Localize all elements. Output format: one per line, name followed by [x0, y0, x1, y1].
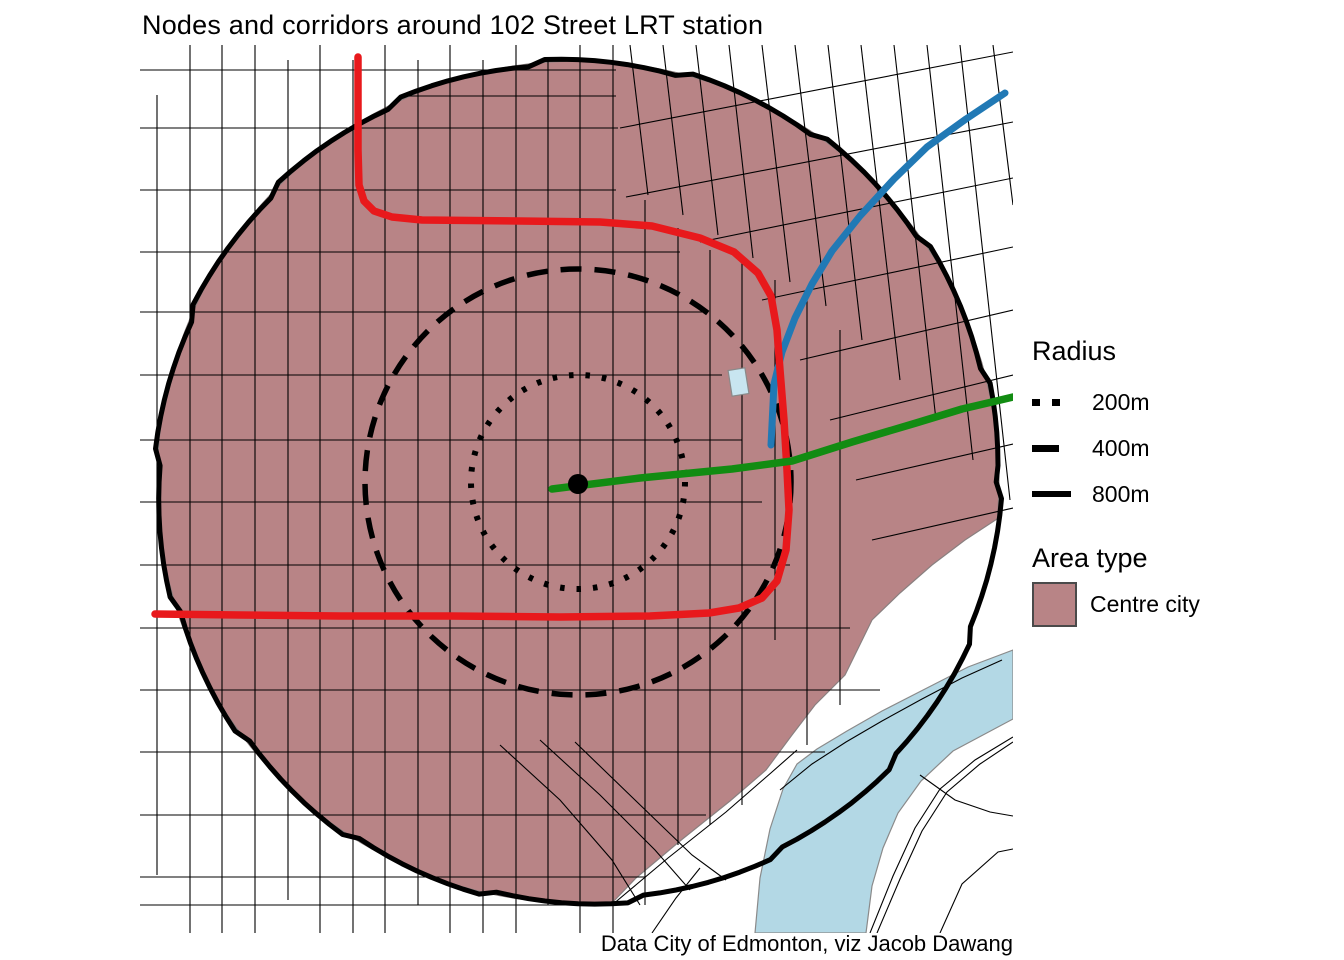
legend-item-800m: 800m	[1032, 481, 1332, 507]
legend-label-centre-city: Centre city	[1090, 591, 1200, 618]
dotted-line-icon	[1052, 399, 1060, 406]
solid-line-icon	[1032, 491, 1071, 497]
street	[652, 868, 700, 933]
legend-label-800m: 800m	[1092, 481, 1150, 508]
street	[920, 775, 1013, 816]
legend-area-type-title: Area type	[1032, 543, 1332, 574]
street	[940, 849, 1013, 933]
legend-item-200m: 200m	[1032, 389, 1332, 415]
legend-sample-200m-dotted-line	[1032, 399, 1078, 406]
page-title: Nodes and corridors around 102 Street LR…	[142, 10, 763, 41]
legend-label-400m: 400m	[1092, 435, 1150, 462]
legend: Radius 200m 400m 800m Area type Centre c…	[1032, 336, 1332, 627]
legend-item-400m: 400m	[1032, 435, 1332, 461]
dashed-line-icon	[1032, 445, 1059, 452]
map-layers	[140, 45, 1013, 933]
legend-item-centre-city: Centre city	[1032, 582, 1332, 627]
legend-radius-title: Radius	[1032, 336, 1332, 367]
caption: Data City of Edmonton, viz Jacob Dawang	[601, 931, 1013, 957]
legend-sample-800m-solid-line	[1032, 491, 1078, 497]
building-footprint	[728, 368, 749, 396]
station-dot	[568, 474, 588, 494]
centre-city-swatch	[1032, 582, 1077, 627]
legend-label-200m: 200m	[1092, 389, 1150, 416]
dotted-line-icon	[1032, 399, 1040, 406]
legend-sample-400m-dashed-line	[1032, 445, 1078, 452]
